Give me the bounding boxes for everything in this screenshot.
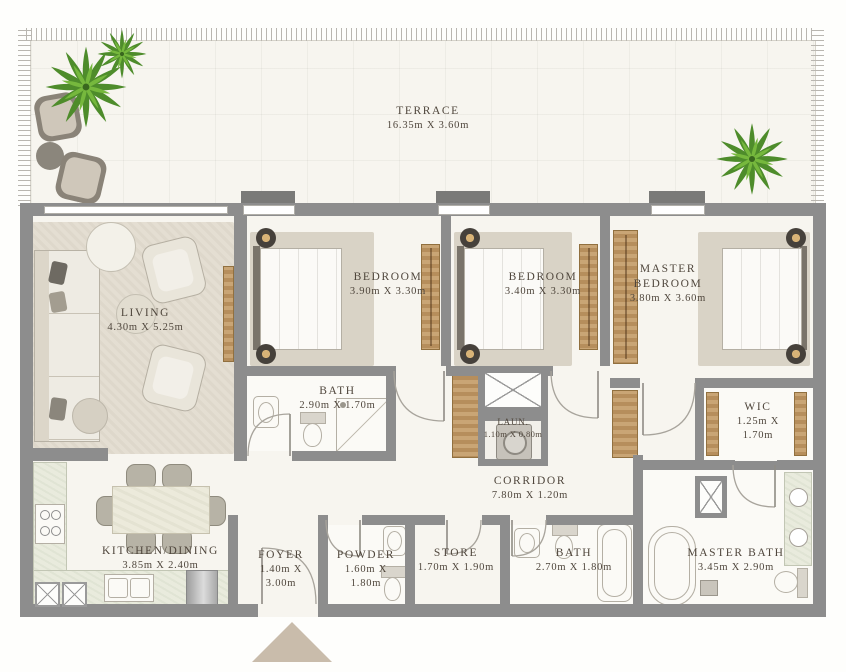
cabinet-icon bbox=[35, 582, 60, 607]
plant-icon bbox=[96, 28, 148, 80]
terrace-door-frame bbox=[241, 191, 295, 203]
coffee-table-icon bbox=[86, 222, 136, 272]
wall bbox=[386, 366, 396, 461]
wall bbox=[546, 515, 640, 525]
room-label-terrace: TERRACE 16.35m X 3.60m bbox=[333, 104, 523, 133]
shaft-icon bbox=[478, 366, 548, 414]
window bbox=[44, 206, 228, 214]
room-label-master-bedroom: MASTER BEDROOM 3.80m X 3.60m bbox=[612, 262, 724, 306]
wall bbox=[322, 604, 826, 617]
entrance-arrow-icon bbox=[252, 622, 332, 662]
fridge-icon bbox=[186, 570, 218, 605]
wall bbox=[610, 378, 640, 388]
bed-icon bbox=[457, 246, 464, 350]
wall bbox=[633, 455, 643, 617]
room-label-bath2: BATH 2.70m X 1.80m bbox=[518, 546, 630, 575]
room-label-bedroom1: BEDROOM 3.90m X 3.30m bbox=[322, 270, 454, 299]
room-label-wic: WIC 1.25m X 1.70m bbox=[728, 400, 788, 443]
closet-icon bbox=[612, 390, 638, 458]
kitchen-sink-icon bbox=[104, 574, 154, 602]
room-label-laundry: LAUN. 1.10m X 0.80m bbox=[479, 417, 547, 440]
bedside-table-icon bbox=[460, 344, 480, 364]
wall bbox=[292, 451, 396, 461]
room-label-master-bath: MASTER BATH 3.45m X 2.90m bbox=[668, 546, 804, 575]
shower-control-icon bbox=[700, 580, 718, 596]
room-label-living: LIVING 4.30m X 5.25m bbox=[88, 306, 203, 335]
terrace-door-frame bbox=[436, 191, 490, 203]
wall bbox=[813, 203, 826, 617]
bedside-table-icon bbox=[786, 228, 806, 248]
room-label-powder: POWDER 1.60m X 1.80m bbox=[330, 548, 402, 591]
sliding-door bbox=[651, 205, 705, 215]
living-cabinet bbox=[223, 266, 234, 362]
wall bbox=[318, 515, 328, 617]
terrace-door-frame bbox=[649, 191, 705, 203]
floor-plan: TERRACE 16.35m X 3.60m LIVING 4.30m X 5.… bbox=[0, 0, 846, 672]
stool-icon bbox=[72, 398, 108, 434]
shaft-icon bbox=[695, 476, 727, 518]
bedside-table-icon bbox=[460, 228, 480, 248]
bed-icon bbox=[253, 246, 260, 350]
room-label-store: STORE 1.70m X 1.90m bbox=[404, 546, 508, 575]
sliding-door bbox=[243, 205, 295, 215]
closet-icon bbox=[452, 372, 480, 458]
bedside-table-icon bbox=[256, 344, 276, 364]
stove-icon bbox=[35, 504, 65, 544]
sink-icon bbox=[253, 396, 279, 428]
throw-pillow-icon bbox=[49, 397, 68, 421]
room-label-bedroom2: BEDROOM 3.40m X 3.30m bbox=[478, 270, 608, 299]
wall bbox=[362, 515, 445, 525]
toilet-icon bbox=[300, 412, 324, 448]
room-label-bath1: BATH 2.90m X 1.70m bbox=[280, 384, 395, 413]
bedside-table-icon bbox=[786, 344, 806, 364]
terrace-edge-hatch-right bbox=[811, 30, 824, 207]
wall bbox=[20, 203, 33, 617]
dining-table-icon bbox=[112, 486, 210, 534]
wall bbox=[247, 366, 386, 376]
plant-icon bbox=[714, 120, 790, 198]
room-label-foyer: FOYER 1.40m X 3.00m bbox=[243, 548, 319, 591]
wall bbox=[234, 203, 247, 461]
terrace-edge-hatch-left bbox=[18, 30, 31, 207]
bed-icon bbox=[722, 248, 802, 350]
room-label-corridor: CORRIDOR 7.80m X 1.20m bbox=[450, 474, 610, 503]
throw-pillow-icon bbox=[48, 291, 67, 313]
wall bbox=[20, 448, 108, 461]
sliding-door bbox=[438, 205, 490, 215]
room-label-kitchen-dining: KITCHEN/DINING 3.85m X 2.40m bbox=[78, 544, 243, 573]
bedside-table-icon bbox=[256, 228, 276, 248]
cabinet-icon bbox=[62, 582, 87, 607]
